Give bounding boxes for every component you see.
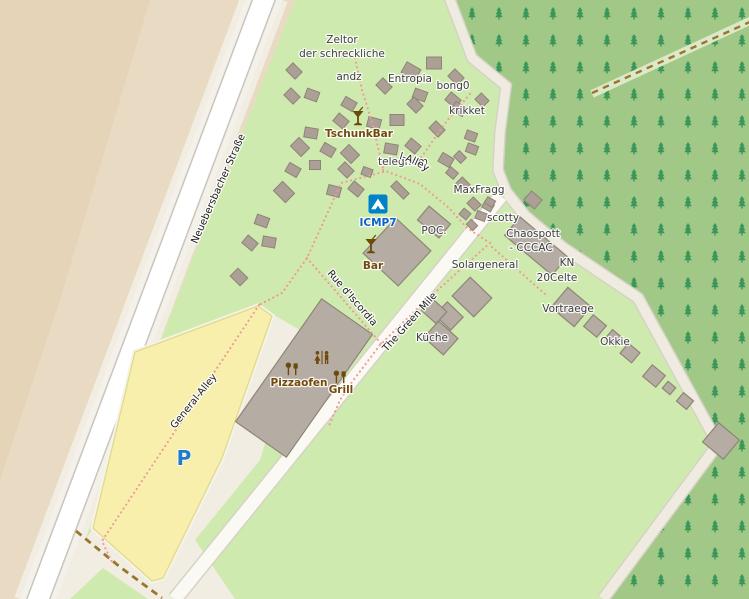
tent <box>304 127 319 139</box>
label-okkie: Okkie <box>600 336 630 348</box>
label-solargeneral: Solargeneral <box>452 259 518 271</box>
label-icmp7: ICMP7 <box>359 217 396 229</box>
tent <box>262 236 277 248</box>
label-andz: andz <box>336 71 362 83</box>
label-der-schreckliche: der schreckliche <box>299 48 385 60</box>
label-kn: KN <box>560 257 575 269</box>
label-scotty: scotty <box>487 212 519 224</box>
label-pizzaofen: Pizzaofen <box>271 377 328 389</box>
label-zeltor: Zeltor <box>326 34 358 46</box>
label-k-che: Küche <box>416 332 448 344</box>
label-cccac: - CCCAC <box>509 242 552 254</box>
label-bong0: bong0 <box>436 80 469 92</box>
campsite-icon <box>369 195 388 214</box>
label-poc: POC. <box>421 225 446 237</box>
label-20celte: 20Celte <box>537 272 578 284</box>
tent <box>427 57 442 69</box>
tent <box>384 143 399 155</box>
label-grill: Grill <box>329 384 354 396</box>
label-krikket: krikket <box>449 105 485 117</box>
label-tschunkbar: TschunkBar <box>325 128 394 140</box>
label-bar: Bar <box>363 260 384 272</box>
map-viewport[interactable]: Zeltorder schrecklicheandzEntropiabong0k… <box>0 0 749 599</box>
label-p: P <box>177 446 192 470</box>
label-entropia: Entropia <box>388 73 432 85</box>
map-canvas: Zeltorder schrecklicheandzEntropiabong0k… <box>0 0 749 599</box>
tent <box>390 115 404 126</box>
label-chaospott: Chaospott <box>506 228 560 240</box>
label-vortraege: Vortraege <box>542 303 594 315</box>
tent <box>310 161 321 170</box>
label-maxfragg: MaxFragg <box>453 184 504 196</box>
